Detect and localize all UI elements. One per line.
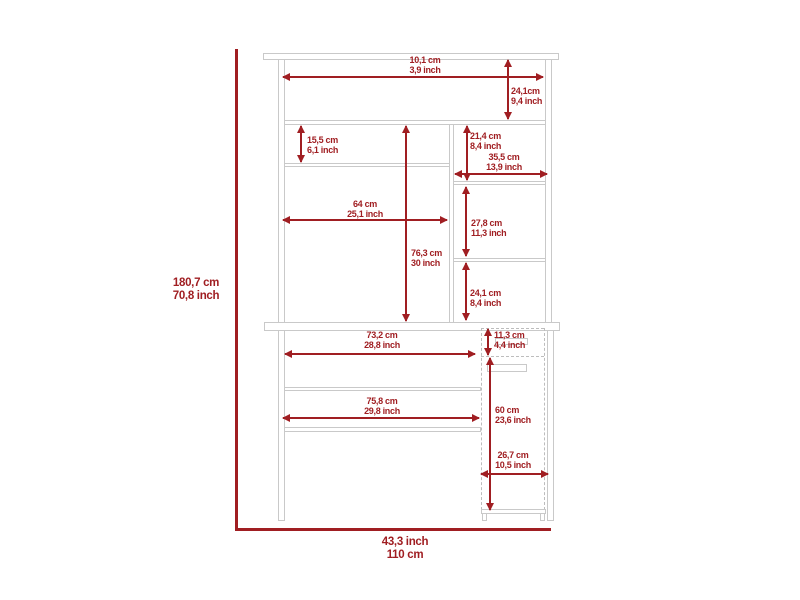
hutch-left-panel: [278, 59, 285, 323]
dim-value-inch: 13,9 inch: [486, 162, 522, 172]
right-middle-shelf-height-label: 27,8 cm 11,3 inch: [471, 218, 506, 238]
right-section-width-label: 35,5 cm 13,9 inch: [486, 152, 522, 172]
dim-value-inch: 23,6 inch: [495, 415, 531, 425]
desk-opening-lower-width-label: 75,8 cm 29,8 inch: [364, 396, 400, 416]
dim-value-inch: 43,3 inch: [382, 536, 429, 549]
dim-value-cm: 27,8 cm: [471, 218, 506, 228]
dim-value-inch: 30 inch: [411, 258, 442, 268]
dim-value-cm: 64 cm: [347, 199, 383, 209]
dim-value-inch: 6,1 inch: [307, 145, 338, 155]
left-cubby-height-label: 15,5 cm 6,1 inch: [307, 135, 338, 155]
right-cubby-height-label: 21,4 cm 8,4 inch: [470, 131, 501, 151]
dim-value-cm: 35,5 cm: [486, 152, 522, 162]
cabinet-height-label: 60 cm 23,6 inch: [495, 405, 531, 425]
dimension-diagram: 10,1 cm 3,9 inch 24,1cm 9,4 inch 15,5 cm…: [0, 0, 800, 600]
right-lower-shelf-height-label: 24,1 cm 8,4 inch: [470, 288, 501, 308]
dim-value-inch: 11,3 inch: [471, 228, 506, 238]
dim-value-cm: 76,3 cm: [411, 248, 442, 258]
hutch-interior-height-arrow: [405, 126, 407, 321]
desk-right-leg: [547, 330, 554, 521]
right-lower-shelf-height-arrow: [465, 263, 467, 320]
desk-back-rail: [284, 387, 481, 391]
drawer-height-label: 11,3 cm 4,4 inch: [494, 330, 525, 350]
door-handle: [487, 364, 527, 372]
dim-value-cm: 26,7 cm: [495, 450, 531, 460]
overall-height-label: 180,7 cm 70,8 inch: [173, 277, 220, 303]
dim-value-cm: 24,1cm: [511, 86, 542, 96]
right-middle-shelf-height-arrow: [465, 187, 467, 256]
top-shelf-width-arrow: [283, 76, 543, 78]
drawer-height-arrow: [487, 329, 489, 355]
desk-lower-shelf: [284, 427, 481, 432]
hutch-left-subshelf: [284, 163, 451, 167]
dim-value-cm: 73,2 cm: [364, 330, 400, 340]
overall-width-label: 43,3 inch 110 cm: [382, 536, 429, 562]
hutch-right-panel: [545, 59, 552, 323]
dim-value-cm: 110 cm: [382, 549, 429, 562]
dim-value-inch: 3,9 inch: [409, 65, 440, 75]
hutch-interior-width-arrow: [283, 219, 447, 221]
dim-value-cm: 24,1 cm: [470, 288, 501, 298]
dim-value-inch: 8,4 inch: [470, 298, 501, 308]
desk-opening-lower-width-arrow: [283, 417, 479, 419]
dim-value-cm: 21,4 cm: [470, 131, 501, 141]
cabinet-right-edge: [544, 328, 545, 510]
hutch-right-middle-shelf: [453, 181, 546, 185]
hutch-interior-height-label: 76,3 cm 30 inch: [411, 248, 442, 268]
cabinet-width-arrow: [481, 473, 548, 475]
dim-value-cm: 10,1 cm: [409, 55, 440, 65]
hutch-full-shelf: [284, 120, 546, 125]
dim-value-inch: 25,1 inch: [347, 209, 383, 219]
left-cubby-height-arrow: [300, 126, 302, 162]
dim-value-cm: 11,3 cm: [494, 330, 525, 340]
cabinet-width-label: 26,7 cm 10,5 inch: [495, 450, 531, 470]
overall-height-line: [235, 49, 238, 530]
dim-value-cm: 75,8 cm: [364, 396, 400, 406]
right-cubby-height-arrow: [466, 126, 468, 180]
top-shelf-height-arrow: [507, 60, 509, 119]
desk-opening-upper-width-label: 73,2 cm 28,8 inch: [364, 330, 400, 350]
dim-value-inch: 9,4 inch: [511, 96, 542, 106]
dim-value-inch: 70,8 inch: [173, 290, 220, 303]
hutch-vertical-divider: [449, 124, 454, 323]
desk-opening-upper-width-arrow: [285, 353, 475, 355]
dim-value-inch: 29,8 inch: [364, 406, 400, 416]
overall-width-line: [235, 528, 551, 531]
top-shelf-width-label: 10,1 cm 3,9 inch: [409, 55, 440, 75]
desk-left-leg: [278, 330, 285, 521]
right-section-width-arrow: [455, 173, 547, 175]
dim-value-cm: 15,5 cm: [307, 135, 338, 145]
dim-value-inch: 28,8 inch: [364, 340, 400, 350]
cabinet-height-arrow: [489, 358, 491, 510]
cabinet-right-foot: [540, 513, 545, 521]
hutch-interior-width-label: 64 cm 25,1 inch: [347, 199, 383, 219]
dim-value-inch: 8,4 inch: [470, 141, 501, 151]
dim-value-inch: 4,4 inch: [494, 340, 525, 350]
cabinet-left-foot: [482, 513, 487, 521]
dim-value-cm: 180,7 cm: [173, 277, 220, 290]
top-shelf-height-label: 24,1cm 9,4 inch: [511, 86, 542, 106]
dim-value-cm: 60 cm: [495, 405, 531, 415]
dim-value-inch: 10,5 inch: [495, 460, 531, 470]
